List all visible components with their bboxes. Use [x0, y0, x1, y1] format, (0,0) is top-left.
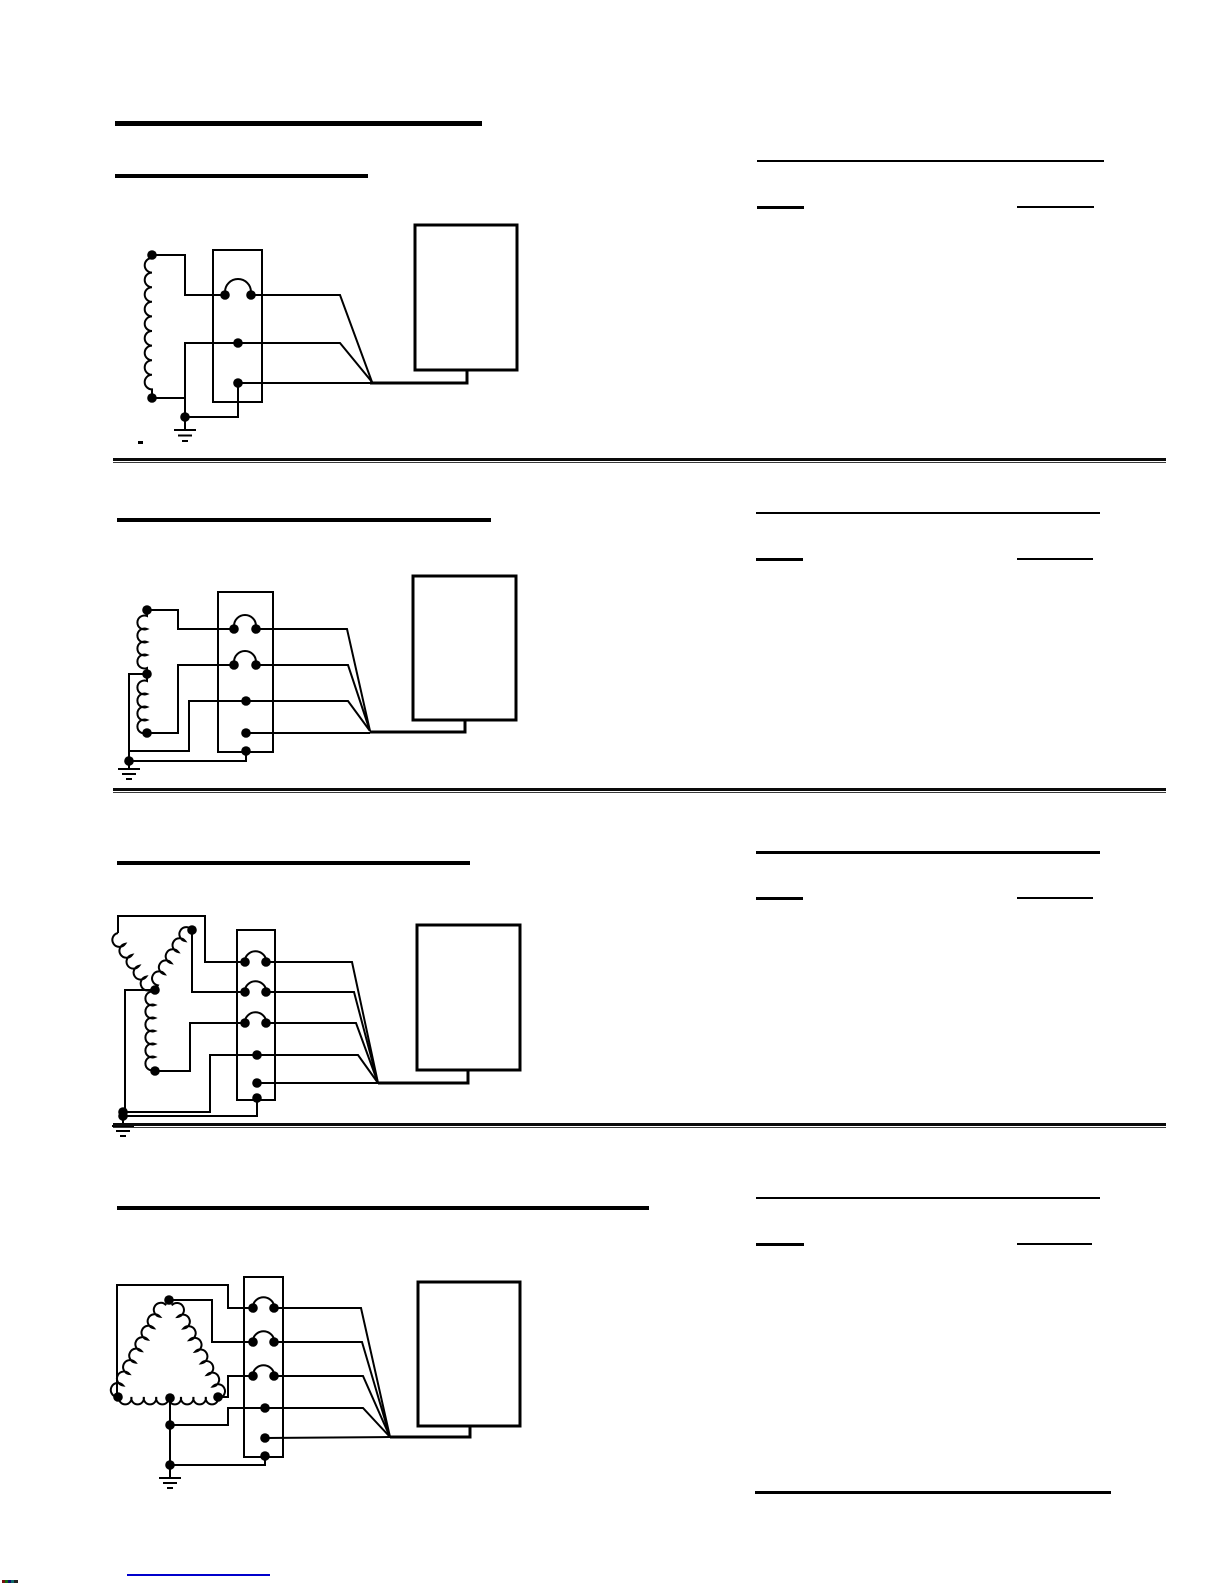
- spec-line: [757, 160, 1104, 162]
- spec-line: [756, 1197, 1100, 1199]
- jumper-arc: [245, 951, 266, 959]
- wire: [125, 990, 155, 1112]
- figure-dual-winding: [90, 562, 540, 784]
- footer-rule: [755, 1491, 1111, 1494]
- microtext-fragment: [14, 1580, 18, 1583]
- terminal-dots: [147, 250, 256, 422]
- section3-heading-underline: [117, 861, 470, 865]
- wire: [246, 701, 370, 731]
- winding-coil: [110, 933, 155, 996]
- equipment-box: [418, 1282, 520, 1426]
- wire: [274, 1376, 390, 1437]
- terminal-dots: [113, 1295, 279, 1470]
- blank-field-left: [756, 558, 803, 561]
- blank-field-right: [1017, 1243, 1092, 1245]
- section-divider: [113, 458, 1166, 463]
- section-divider: [113, 788, 1166, 793]
- section-divider: [113, 1123, 1166, 1128]
- jumper-arc: [245, 981, 266, 989]
- jumper-arc: [234, 615, 256, 626]
- terminal-block: [244, 1277, 283, 1457]
- figure-single-winding: [110, 218, 525, 448]
- winding-coil: [145, 992, 155, 1071]
- stray-mark: [138, 441, 143, 444]
- wire-bundle: [390, 1426, 470, 1437]
- wiring: [108, 1277, 520, 1488]
- wire-bundle: [370, 370, 467, 383]
- wiring: [110, 916, 520, 1136]
- winding-coil: [171, 1301, 227, 1399]
- footer-link-underline[interactable]: [127, 1574, 270, 1576]
- wiring: [118, 576, 516, 779]
- wiring: [145, 225, 517, 441]
- wire: [152, 255, 225, 295]
- terminal-block: [237, 930, 275, 1100]
- jumper-arc: [253, 1331, 274, 1339]
- wire: [170, 1408, 265, 1425]
- equipment-box: [417, 925, 520, 1070]
- section4-heading-underline: [117, 1206, 649, 1210]
- wire-bundle: [378, 1070, 468, 1083]
- wire: [185, 383, 238, 417]
- jumper-arc: [253, 1297, 274, 1305]
- jumper-arc: [245, 1012, 266, 1020]
- winding-coil: [137, 674, 147, 734]
- blank-field-right: [1017, 206, 1094, 208]
- equipment-box: [415, 225, 517, 370]
- equipment-box: [413, 576, 516, 720]
- winding-coil: [147, 925, 192, 990]
- spec-line: [756, 512, 1100, 514]
- blank-field-right: [1017, 897, 1093, 899]
- blank-field-left: [756, 897, 803, 900]
- blank-field-left: [756, 1243, 804, 1246]
- figure-delta-winding: [90, 1258, 560, 1493]
- wire: [251, 295, 372, 382]
- jumper-arc: [234, 651, 256, 662]
- wire: [129, 701, 246, 751]
- wire: [238, 343, 372, 382]
- jumper-arc: [225, 279, 251, 292]
- wire: [266, 1023, 378, 1083]
- wire: [185, 343, 238, 417]
- jumper-arc: [253, 1365, 274, 1373]
- wire: [155, 1023, 245, 1071]
- winding-coil: [137, 610, 147, 674]
- figure-wye-winding: [90, 908, 540, 1148]
- title-underline: [115, 121, 482, 126]
- blank-field-right: [1017, 558, 1093, 560]
- wire-bundle: [370, 720, 465, 732]
- winding-coil: [145, 258, 152, 397]
- wire: [147, 665, 234, 733]
- footer-microtext-artifact: [2, 1580, 18, 1583]
- blank-field-left: [757, 206, 804, 209]
- subtitle-underline: [115, 174, 368, 178]
- wire: [169, 1300, 253, 1342]
- wire: [147, 610, 234, 629]
- spec-line: [756, 851, 1100, 854]
- manual-page: [0, 0, 1225, 1585]
- section2-heading-underline: [117, 518, 491, 522]
